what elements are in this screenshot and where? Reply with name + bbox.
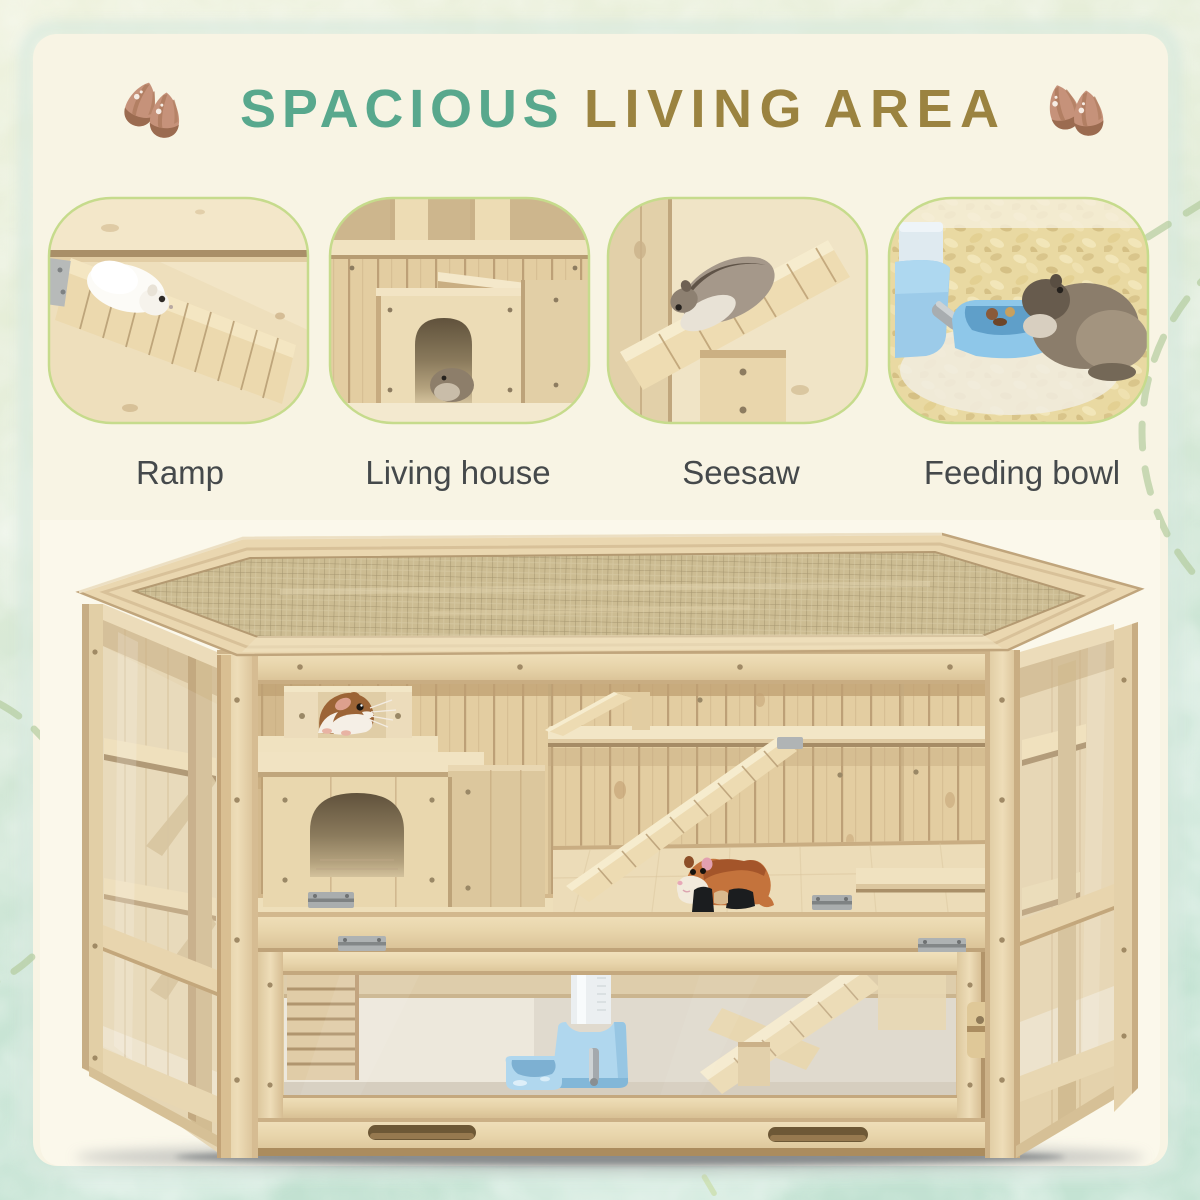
svg-text:Feeding bowl: Feeding bowl <box>924 454 1120 491</box>
svg-text:Ramp: Ramp <box>136 454 224 491</box>
svg-text:Living house: Living house <box>365 454 550 491</box>
svg-text:LIVING AREA: LIVING AREA <box>584 79 1007 139</box>
svg-text:Seesaw: Seesaw <box>682 454 800 491</box>
svg-text:SPACIOUS: SPACIOUS <box>240 79 564 139</box>
